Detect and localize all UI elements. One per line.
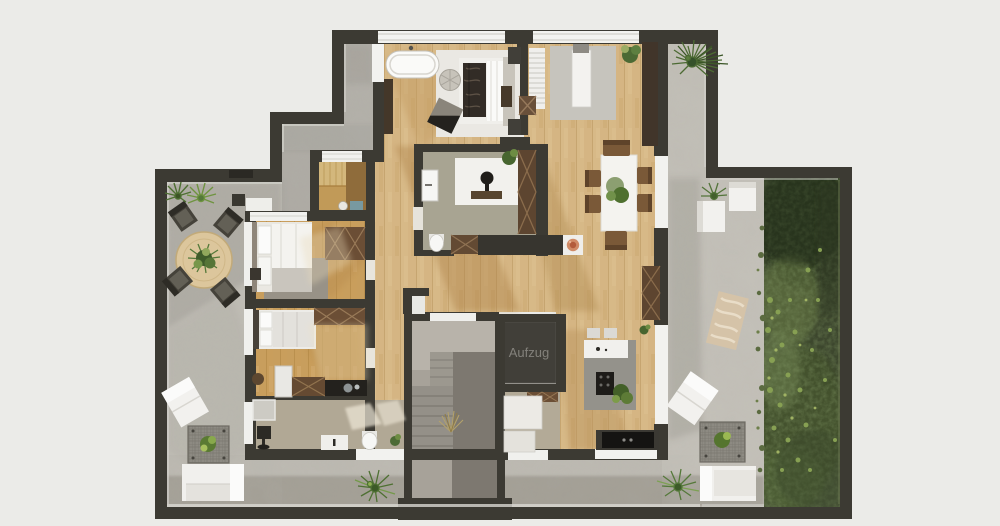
svg-text:Aufzug: Aufzug: [509, 345, 549, 360]
